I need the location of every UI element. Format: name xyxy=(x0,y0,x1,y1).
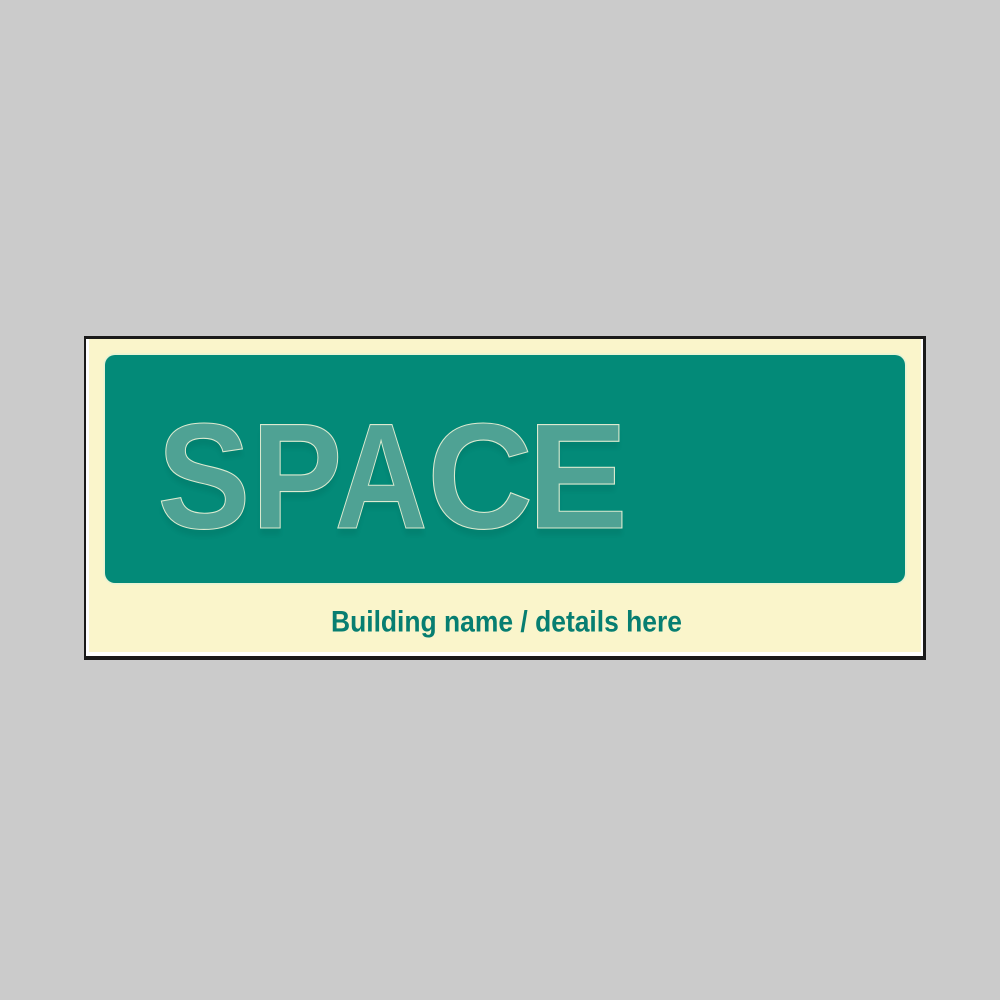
svg-text:Building name / details here: Building name / details here xyxy=(331,606,682,639)
svg-text:C: C xyxy=(427,392,533,560)
svg-text:S: S xyxy=(157,392,250,560)
svg-text:A: A xyxy=(335,392,428,560)
svg-text:P: P xyxy=(251,392,342,560)
svg-text:E: E xyxy=(528,392,628,560)
